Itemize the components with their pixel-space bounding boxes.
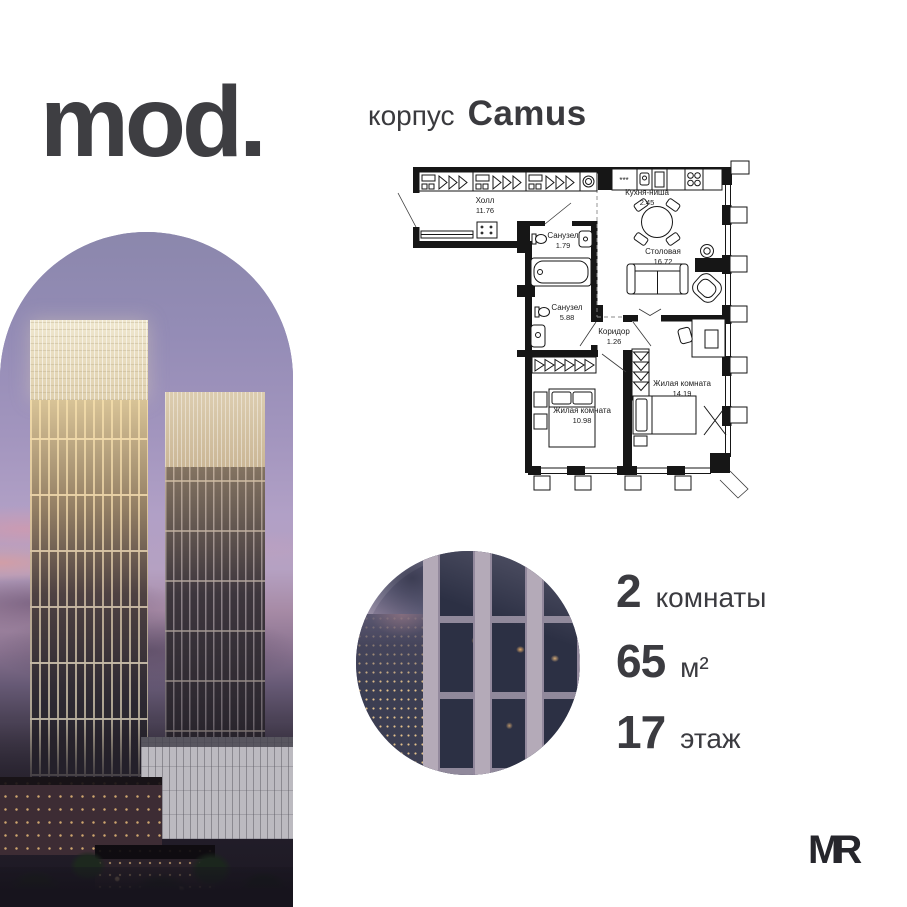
area-value: 65 (616, 638, 665, 684)
room-area: 1.26 (607, 337, 622, 346)
rooms-count: 2 (616, 568, 641, 614)
tower-left-crown (30, 320, 148, 400)
facade-city-view (356, 614, 432, 775)
room-area: 5.88 (560, 313, 575, 322)
kitchen-symbol: *** (619, 176, 628, 185)
stat-rooms: 2 комнаты (616, 568, 766, 614)
balcony-door-mark (639, 309, 661, 316)
floor-plan: *** (395, 145, 785, 505)
room-name: Холл (476, 196, 495, 205)
room-area: 16.72 (654, 257, 673, 266)
zone-dashes (597, 175, 623, 317)
floor-label: этаж (680, 723, 740, 755)
room-name: Столовая (645, 247, 681, 256)
room-name: Коридор (598, 327, 630, 336)
tower-right-crown (165, 392, 265, 467)
facade-windows (423, 551, 580, 775)
room-area: 11.76 (476, 206, 494, 215)
korpus-header: корпус Camus (368, 94, 587, 134)
room-area: 14.19 (673, 389, 692, 398)
korpus-name: Camus (468, 94, 587, 134)
room-name: Жилая комната (553, 406, 611, 415)
room-area: 1.79 (556, 241, 571, 250)
street (0, 867, 293, 907)
hall-wardrobe (419, 172, 597, 191)
stat-floor: 17 этаж (616, 709, 741, 755)
terrace-edge (720, 471, 748, 498)
room-name: Санузел (551, 303, 582, 312)
room-name: Кухня-ниша (625, 188, 669, 197)
area-unit: м² (680, 652, 709, 684)
hall-bench (421, 222, 497, 238)
towers-photo (0, 232, 293, 907)
rooms-label: комнаты (656, 582, 767, 614)
mod-logo: mod. (40, 72, 263, 172)
room-area: 2.45 (640, 198, 655, 207)
stat-area: 65 м² (616, 638, 709, 684)
room-name: Санузел (547, 231, 578, 240)
room-name: Жилая комната (653, 379, 711, 388)
bedroom2-furniture (532, 357, 596, 447)
korpus-prefix: корпус (368, 100, 455, 132)
facade-photo (356, 551, 580, 775)
mr-logo: MR (808, 830, 854, 870)
city-foreground (0, 722, 293, 907)
floor-value: 17 (616, 709, 665, 755)
room-area: 10.98 (573, 416, 592, 425)
